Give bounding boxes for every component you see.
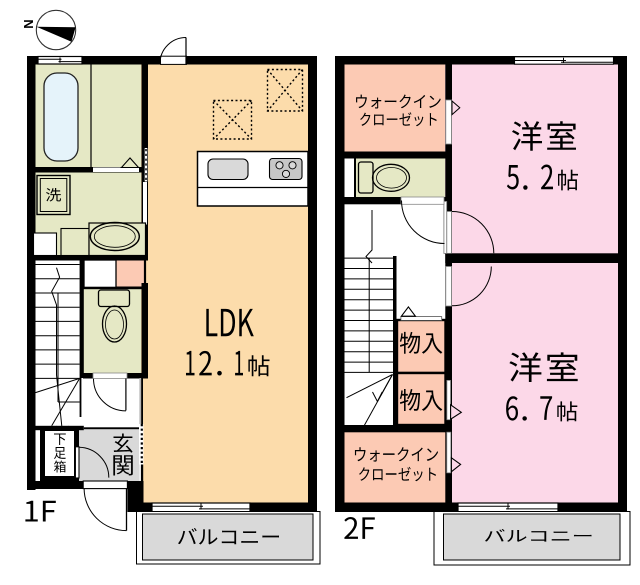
svg-text:N: N — [21, 19, 36, 28]
